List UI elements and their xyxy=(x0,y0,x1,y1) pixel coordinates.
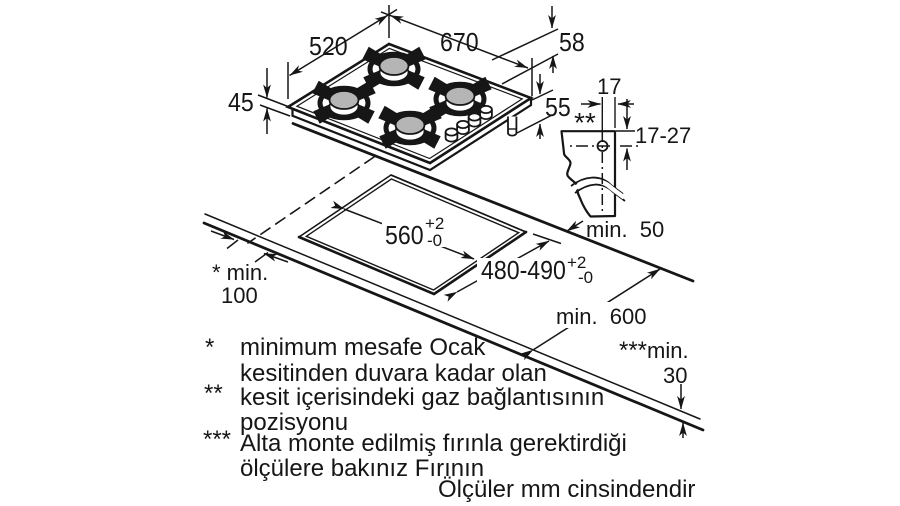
svg-text:480-490: 480-490 xyxy=(481,257,566,286)
svg-text:-0: -0 xyxy=(427,231,442,250)
svg-text:560: 560 xyxy=(385,222,424,251)
svg-text:***: *** xyxy=(619,337,647,364)
svg-text:58: 58 xyxy=(559,29,585,58)
svg-text:**: ** xyxy=(204,380,223,407)
svg-text:**: ** xyxy=(574,107,596,138)
svg-text:min.: min. xyxy=(647,338,689,363)
svg-text:670: 670 xyxy=(440,29,479,58)
svg-text:55: 55 xyxy=(545,94,571,123)
svg-text:17: 17 xyxy=(597,74,621,99)
svg-text:***: *** xyxy=(203,426,231,453)
svg-text:kesitinden duvara kadar olan: kesitinden duvara kadar olan xyxy=(240,360,547,387)
svg-text:minimum mesafe Ocak: minimum mesafe Ocak xyxy=(240,334,486,361)
svg-text:min. 50: min. 50 xyxy=(586,217,664,242)
svg-text:*: * xyxy=(205,334,214,361)
svg-text:kesit içerisindeki gaz bağlant: kesit içerisindeki gaz bağlantısının xyxy=(240,384,604,411)
svg-text:520: 520 xyxy=(309,33,348,62)
svg-text:100: 100 xyxy=(221,283,258,308)
svg-text:-0: -0 xyxy=(578,268,593,287)
svg-text:Alta monte edilmiş fırınla ger: Alta monte edilmiş fırınla gerektirdiği xyxy=(240,430,627,457)
svg-text:17-27: 17-27 xyxy=(635,123,691,148)
svg-text:* min.: * min. xyxy=(212,260,268,285)
svg-text:Ölçüler mm cinsindendir: Ölçüler mm cinsindendir xyxy=(438,476,695,503)
svg-text:min. 600: min. 600 xyxy=(556,304,647,329)
svg-text:30: 30 xyxy=(663,363,687,388)
svg-text:45: 45 xyxy=(228,89,254,118)
